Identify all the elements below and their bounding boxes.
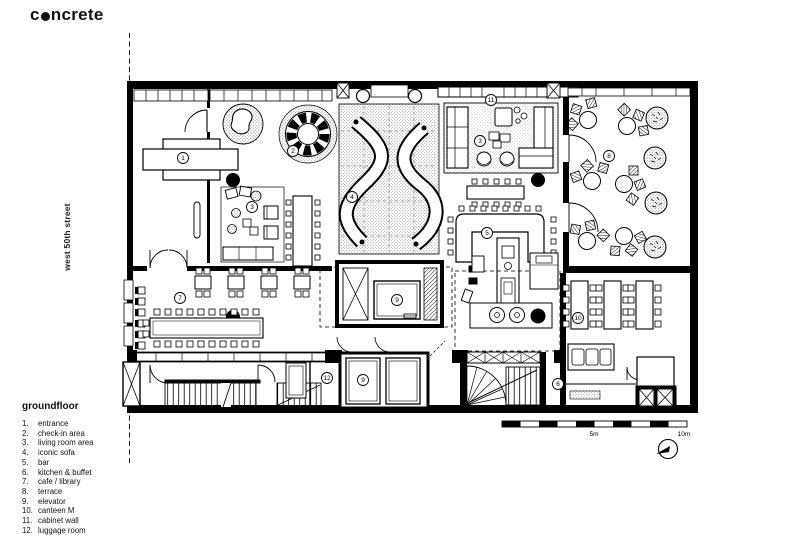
marker-elevator-lower: 9 [358,375,369,386]
svg-text:4: 4 [350,194,354,201]
svg-text:8: 8 [607,153,611,160]
marker-bar: 5 [482,228,493,239]
art-rug [223,104,263,144]
mid-wall-band [130,353,332,362]
scale-end-label: 10m [678,431,691,438]
floor-plan: 1 2 3 3 4 5 6 7 8 9 9 10 11 12 5m 10m [0,0,800,530]
marker-iconic-sofa: 4 [347,192,358,203]
corner-shaft [123,362,140,406]
scale-mid-label: 5m [589,431,598,438]
service-shafts [636,357,676,408]
svg-text:1: 1 [181,155,185,162]
scale-bar: 5m 10m [502,421,690,438]
marker-elevator-upper: 9 [392,295,403,306]
iconic-sofa-area [339,104,439,254]
lobby-communal-table [286,196,320,266]
svg-text:11: 11 [488,97,495,104]
north-arrow [656,440,678,459]
marker-terrace: 8 [604,151,615,162]
marker-living-right: 3 [475,136,486,147]
svg-text:2: 2 [291,148,295,155]
svg-text:9: 9 [395,297,399,304]
svg-text:9: 9 [361,377,365,384]
svg-text:5: 5 [485,230,489,237]
svg-text:10: 10 [574,315,582,322]
svg-text:7: 7 [178,295,182,302]
svg-text:3: 3 [250,204,254,211]
cafe-library-area [136,250,311,349]
svg-text:3: 3 [478,138,482,145]
marker-canteen: 10 [573,313,584,324]
living-room-left [221,186,284,262]
terrace-area [566,98,668,265]
marker-entrance: 1 [178,153,189,164]
living-room-right [444,103,558,173]
checkin-desk [279,105,337,163]
marker-living-left: 3 [247,202,258,213]
svg-text:6: 6 [556,381,560,388]
buffet-area [566,344,640,399]
dining-table [467,179,524,207]
fire-stair [467,352,540,405]
marker-luggage: 12 [322,373,333,384]
marker-cabinet-wall: 11 [486,95,497,106]
marker-checkin: 2 [288,146,299,157]
elevator-core [320,262,452,327]
svg-text:12: 12 [323,375,331,382]
marker-kitchen: 6 [553,379,564,390]
elevator-bank [337,337,445,408]
marker-cafe-library: 7 [175,293,186,304]
